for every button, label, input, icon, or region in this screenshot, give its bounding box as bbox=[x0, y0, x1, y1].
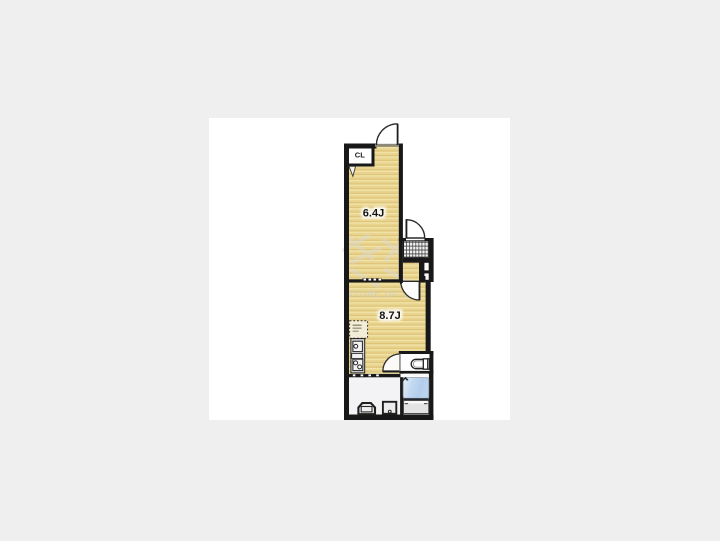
svg-text:CL: CL bbox=[355, 151, 365, 160]
svg-text:8.7J: 8.7J bbox=[379, 310, 400, 322]
svg-text:6.4J: 6.4J bbox=[363, 208, 384, 220]
